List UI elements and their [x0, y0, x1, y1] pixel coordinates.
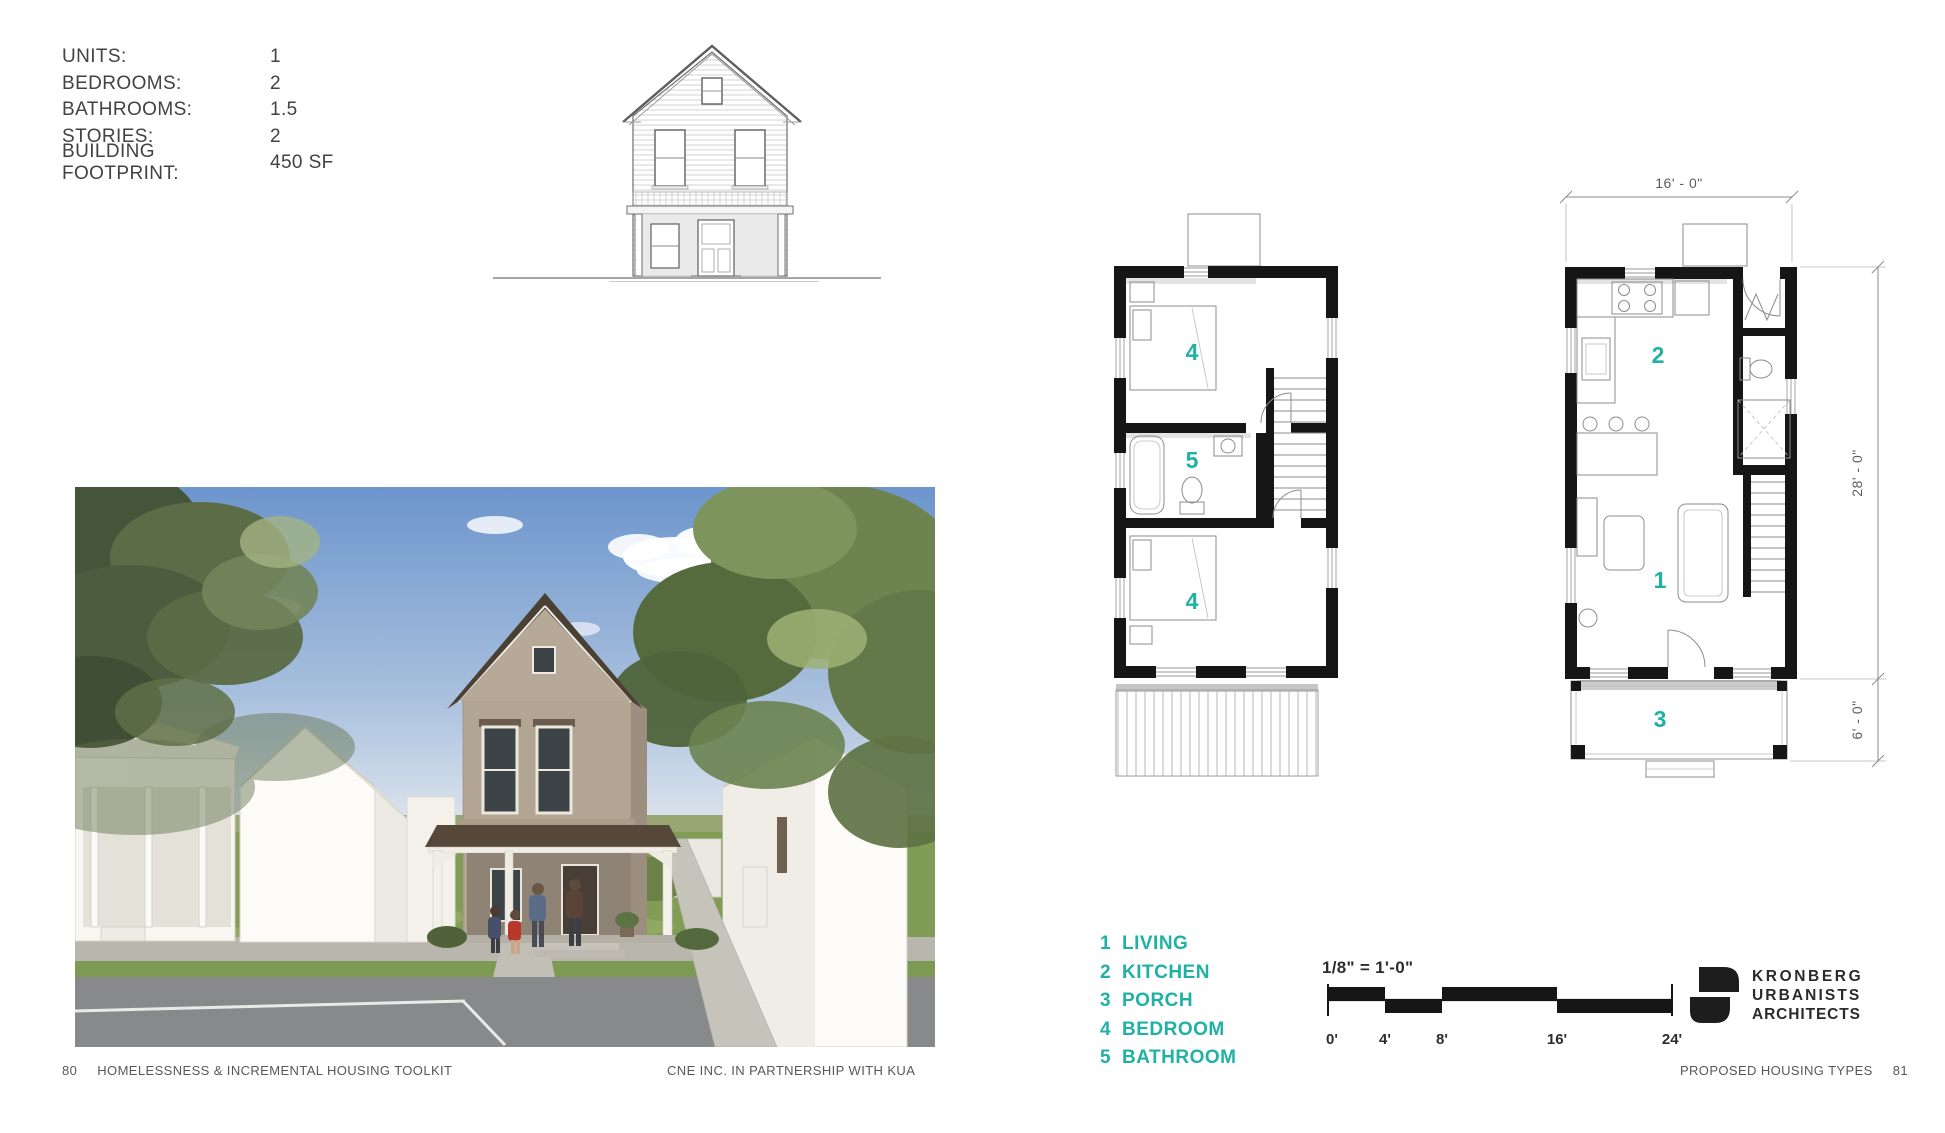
footer-center: CNE INC. IN PARTNERSHIP WITH KUA — [667, 1063, 915, 1078]
footer-section-title: PROPOSED HOUSING TYPES — [1680, 1063, 1873, 1078]
dimension-height: 28' - 0" 6' - 0" — [1790, 261, 1886, 767]
second-floor-window-left — [652, 130, 688, 189]
skirt-band — [633, 192, 787, 206]
shrub-left — [427, 926, 467, 948]
floor-plan-first: 16' - 0" — [1528, 148, 1942, 798]
scale-bar: 1/8" = 1'-0" 0' 4' 8' 16' 24' — [1322, 958, 1702, 1059]
scale-tick-0: 0' — [1326, 1031, 1338, 1048]
legend-item-porch: 3 PORCH — [1100, 987, 1236, 1016]
scale-bar-graphic: 0' 4' 8' 16' 24' — [1322, 982, 1692, 1054]
room-number-kitchen: 2 — [1652, 342, 1665, 368]
first-floor-window — [651, 224, 679, 268]
dim-width-label: 16' - 0" — [1655, 175, 1702, 191]
exterior-walls — [1114, 266, 1338, 678]
front-elevation-drawing — [489, 26, 885, 288]
spec-value: 1.5 — [270, 99, 298, 121]
porch-roof — [425, 825, 681, 847]
dim-porch-label: 6' - 0" — [1849, 700, 1865, 739]
porch-post-left — [635, 214, 642, 276]
legend-item-living: 1 LIVING — [1100, 930, 1236, 959]
stairs — [1751, 482, 1785, 592]
spec-row-footprint: BUILDING FOOTPRINT: 450 SF — [62, 150, 482, 177]
spec-value: 2 — [270, 73, 281, 95]
spec-label: BUILDING FOOTPRINT: — [62, 141, 270, 185]
legend-item-bathroom: 5 BATHROOM — [1100, 1044, 1236, 1073]
footer-left: 80 HOMELESSNESS & INCREMENTAL HOUSING TO… — [62, 1063, 452, 1078]
room-number-living: 1 — [1654, 567, 1667, 593]
living-furniture — [1577, 498, 1728, 627]
dimension-width: 16' - 0" — [1560, 175, 1798, 262]
porch — [1571, 680, 1787, 777]
logo-line-2: URBANISTS — [1752, 986, 1863, 1005]
spec-label: BATHROOMS: — [62, 99, 270, 121]
spec-row-units: UNITS: 1 — [62, 44, 482, 71]
room-number-porch: 3 — [1654, 706, 1667, 732]
kitchen-fixtures — [1577, 279, 1709, 475]
spec-label: UNITS: — [62, 46, 270, 68]
bumpout-outline — [1683, 224, 1747, 266]
scale-tick-24: 24' — [1662, 1031, 1682, 1048]
room-legend: 1 LIVING 2 KITCHEN 3 PORCH 4 BEDROOM 5 B… — [1100, 930, 1236, 1073]
deck — [1116, 684, 1318, 776]
room-number-bedroom-bottom: 4 — [1186, 588, 1199, 614]
legend-label: BEDROOM — [1122, 1019, 1225, 1041]
footer-right: PROPOSED HOUSING TYPES 81 — [1680, 1063, 1908, 1078]
room-number-bathroom: 5 — [1186, 447, 1199, 473]
logo-line-1: KRONBERG — [1752, 967, 1863, 986]
logo-line-3: ARCHITECTS — [1752, 1005, 1863, 1024]
legend-item-bedroom: 4 BEDROOM — [1100, 1016, 1236, 1045]
footer-title: HOMELESSNESS & INCREMENTAL HOUSING TOOLK… — [97, 1063, 452, 1078]
legend-label: LIVING — [1122, 933, 1188, 955]
legend-num: 3 — [1100, 990, 1122, 1012]
porch-post-right — [778, 214, 785, 276]
legend-num: 4 — [1100, 1019, 1122, 1041]
legend-num: 5 — [1100, 1047, 1122, 1069]
entry-door — [698, 220, 734, 276]
windows — [1116, 268, 1336, 676]
legend-item-kitchen: 2 KITCHEN — [1100, 959, 1236, 988]
architect-logo: KRONBERG URBANISTS ARCHITECTS — [1688, 966, 1863, 1024]
scale-tick-16: 16' — [1547, 1031, 1567, 1048]
legend-num: 1 — [1100, 933, 1122, 955]
spec-list: UNITS: 1 BEDROOMS: 2 BATHROOMS: 1.5 STOR… — [62, 44, 482, 177]
floor-plan-second: 4 5 4 — [1096, 198, 1358, 790]
street-rendering — [75, 487, 935, 1047]
massing-sliver — [407, 797, 455, 942]
legend-label: KITCHEN — [1122, 962, 1210, 984]
scale-ratio-label: 1/8" = 1'-0" — [1322, 958, 1702, 978]
spec-row-bedrooms: BEDROOMS: 2 — [62, 71, 482, 98]
room-number-bedroom-top: 4 — [1186, 339, 1199, 365]
legend-label: BATHROOM — [1122, 1047, 1236, 1069]
legend-num: 2 — [1100, 962, 1122, 984]
porch-beam — [627, 206, 793, 214]
spec-label: BEDROOMS: — [62, 73, 270, 95]
house-facade — [623, 46, 801, 276]
second-floor-window-right — [732, 130, 768, 189]
scale-tick-8: 8' — [1436, 1031, 1448, 1048]
spec-value: 450 SF — [270, 152, 334, 174]
shrub-right — [675, 928, 719, 950]
roof-canopy-outline — [1188, 214, 1260, 266]
scale-tick-4: 4' — [1379, 1031, 1391, 1048]
interior-walls — [1126, 368, 1326, 528]
logo-text: KRONBERG URBANISTS ARCHITECTS — [1752, 967, 1863, 1024]
bathroom-fixtures — [1738, 358, 1790, 458]
spec-row-bathrooms: BATHROOMS: 1.5 — [62, 97, 482, 124]
attic-window — [533, 647, 555, 673]
dim-height-label: 28' - 0" — [1849, 449, 1865, 496]
page-number-right: 81 — [1893, 1063, 1908, 1078]
logo-mark-icon — [1688, 966, 1742, 1024]
toolkit-page: UNITS: 1 BEDROOMS: 2 BATHROOMS: 1.5 STOR… — [0, 0, 1945, 1133]
legend-label: PORCH — [1122, 990, 1193, 1012]
page-number-left: 80 — [62, 1063, 77, 1078]
spec-value: 2 — [270, 126, 281, 148]
spec-value: 1 — [270, 46, 281, 68]
